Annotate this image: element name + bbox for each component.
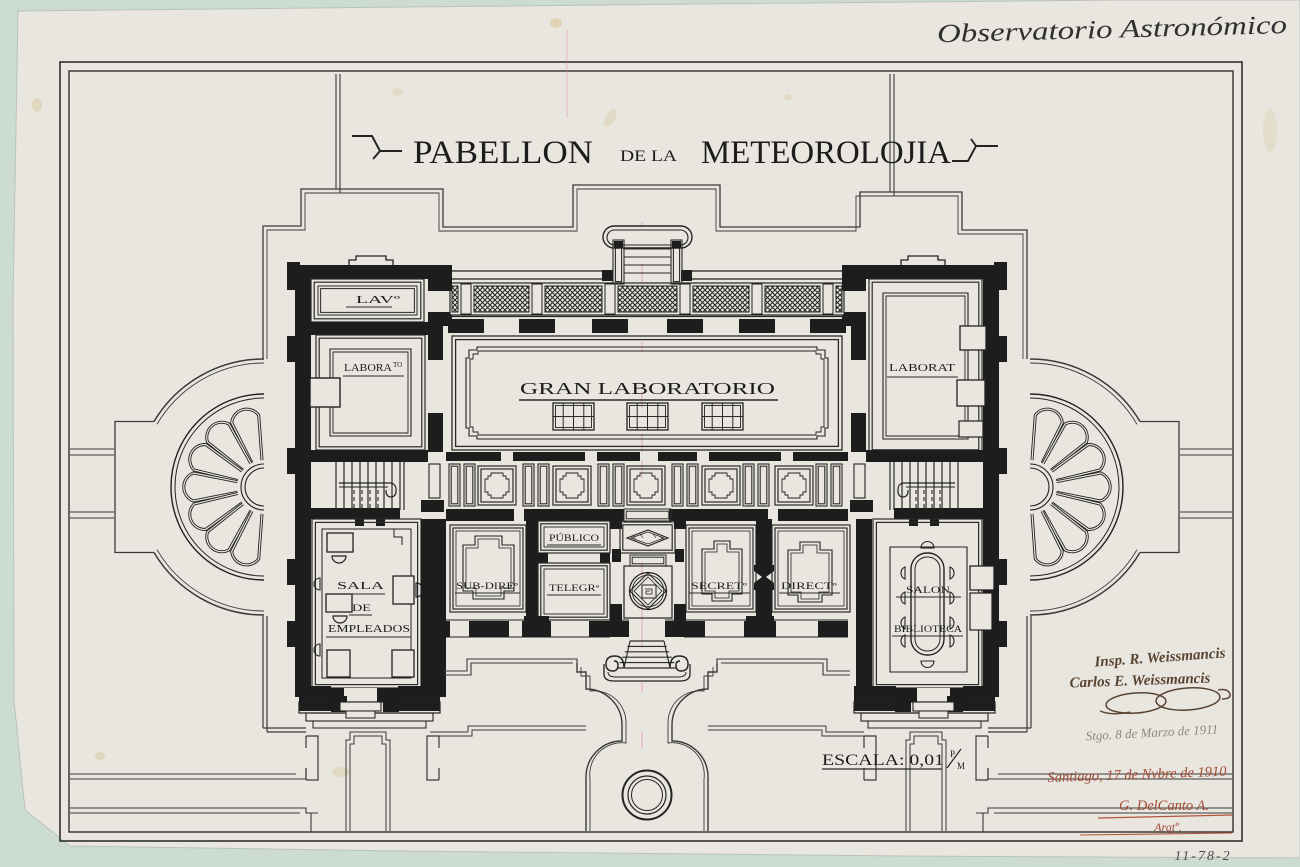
svg-text:LABORAT: LABORAT <box>889 362 955 374</box>
svg-text:SALA: SALA <box>337 580 384 592</box>
svg-text:TO: TO <box>393 361 402 369</box>
svg-text:M: M <box>957 761 965 771</box>
svg-text:SUB-DIREº: SUB-DIREº <box>456 581 518 591</box>
svg-text:Arqtº.: Arqtº. <box>1153 820 1182 834</box>
svg-text:GRAN LABORATORIO: GRAN LABORATORIO <box>520 379 775 398</box>
svg-text:METEOROLOJIA: METEOROLOJIA <box>701 135 951 171</box>
svg-text:BIBLIOTECA: BIBLIOTECA <box>894 625 962 635</box>
svg-text:LAVº: LAVº <box>356 294 401 306</box>
svg-text:TELEGRª: TELEGRª <box>549 583 600 593</box>
svg-text:DE LA: DE LA <box>620 148 678 165</box>
svg-text:EMPLEADOS: EMPLEADOS <box>328 623 410 635</box>
svg-text:PABELLON: PABELLON <box>413 135 593 171</box>
svg-text:11-78-2: 11-78-2 <box>1174 849 1231 864</box>
svg-text:G. DelCanto A.: G. DelCanto A. <box>1119 798 1209 814</box>
svg-text:SALON: SALON <box>906 586 950 596</box>
svg-text:SECRETº: SECRETº <box>691 581 747 591</box>
svg-text:LABORA: LABORA <box>344 362 392 374</box>
svg-text:DE: DE <box>352 603 372 613</box>
svg-text:DIRECTº: DIRECTº <box>781 581 837 591</box>
svg-text:ESCALA: 0,01: ESCALA: 0,01 <box>822 752 944 769</box>
svg-text:PÚBLICO: PÚBLICO <box>549 533 600 543</box>
